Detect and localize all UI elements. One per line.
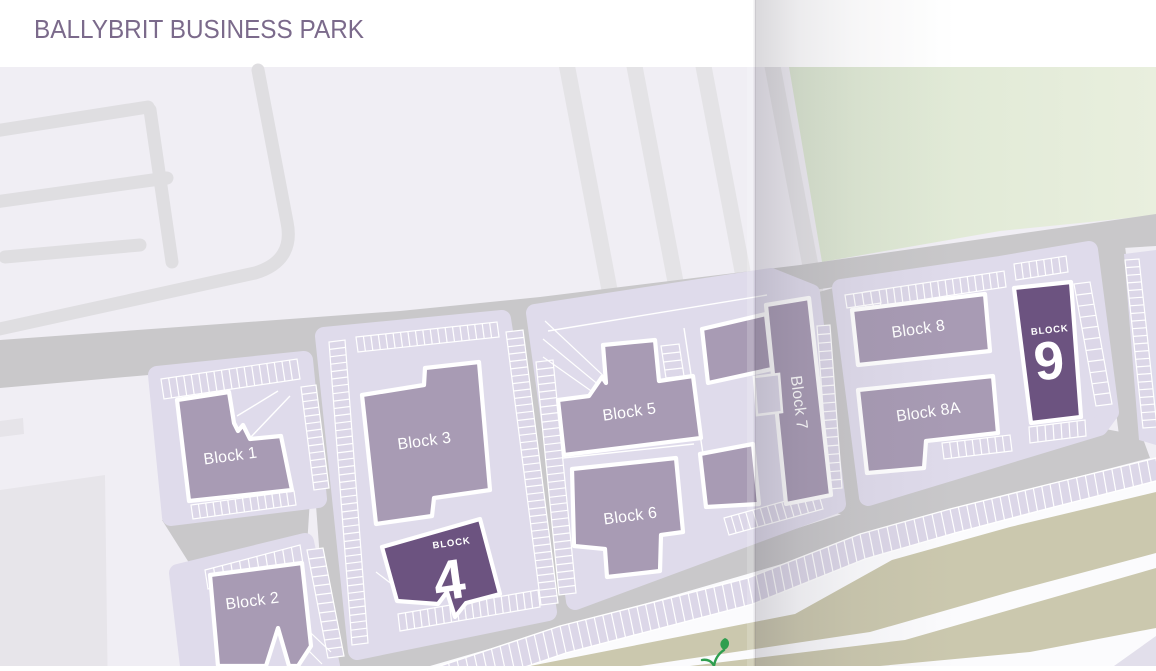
svg-text:9: 9 <box>1031 330 1067 393</box>
svg-text:BALLYBRIT BUSINESS PARK: BALLYBRIT BUSINESS PARK <box>34 14 365 44</box>
